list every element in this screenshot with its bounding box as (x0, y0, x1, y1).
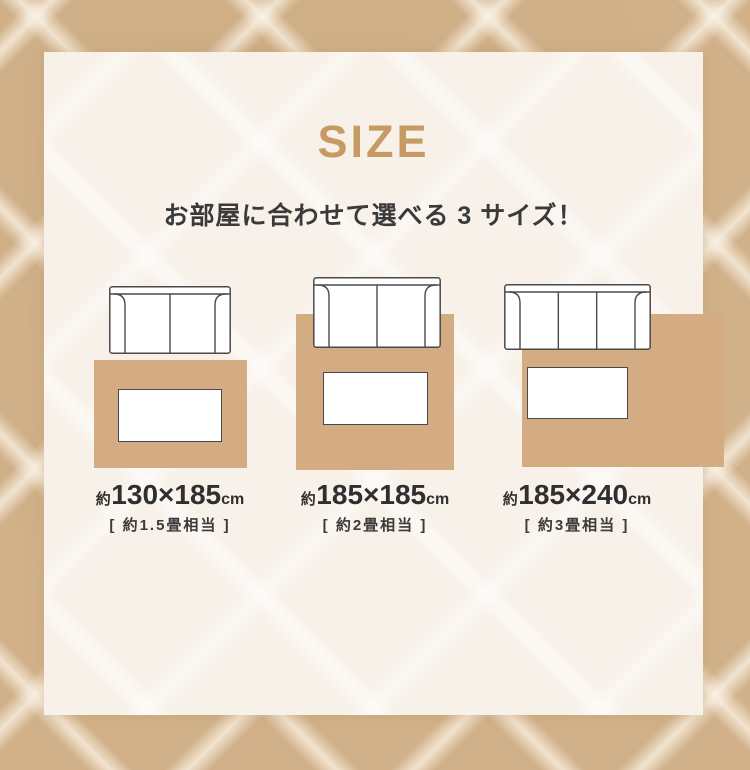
size-label-185x240: 約185×240cm [ 約3畳相当 ] (467, 480, 687, 535)
tatami-equivalent-note: [ 約2畳相当 ] (265, 514, 485, 535)
approx-prefix: 約 (301, 491, 317, 508)
size-dimensions: 約185×240cm (467, 480, 687, 511)
product-size-infographic: SIZE お部屋に合わせて選べる 3 サイズ！ 約130×185cm [ 約1.… (0, 0, 750, 770)
tatami-equivalent-note: [ 約3畳相当 ] (467, 514, 687, 535)
size-label-130x185: 約130×185cm [ 約1.5畳相当 ] (60, 480, 280, 535)
approx-prefix: 約 (503, 491, 519, 508)
size-label-185x185: 約185×185cm [ 約2畳相当 ] (265, 480, 485, 535)
size-dimensions: 約185×185cm (265, 480, 485, 511)
size-dimensions: 約130×185cm (60, 480, 280, 511)
sofa-top-view-icon (504, 284, 651, 350)
tatami-equivalent-note: [ 約1.5畳相当 ] (60, 514, 280, 535)
page-title: SIZE (44, 116, 703, 168)
table-illustration (527, 367, 628, 419)
approx-prefix: 約 (96, 491, 112, 508)
page-subtitle: お部屋に合わせて選べる 3 サイズ！ (44, 196, 703, 232)
sofa-top-view-icon (313, 277, 441, 348)
sofa-top-view-icon (109, 286, 231, 354)
table-illustration (323, 372, 428, 425)
table-illustration (118, 389, 222, 442)
content-panel: SIZE お部屋に合わせて選べる 3 サイズ！ 約130×185cm [ 約1.… (44, 52, 703, 715)
